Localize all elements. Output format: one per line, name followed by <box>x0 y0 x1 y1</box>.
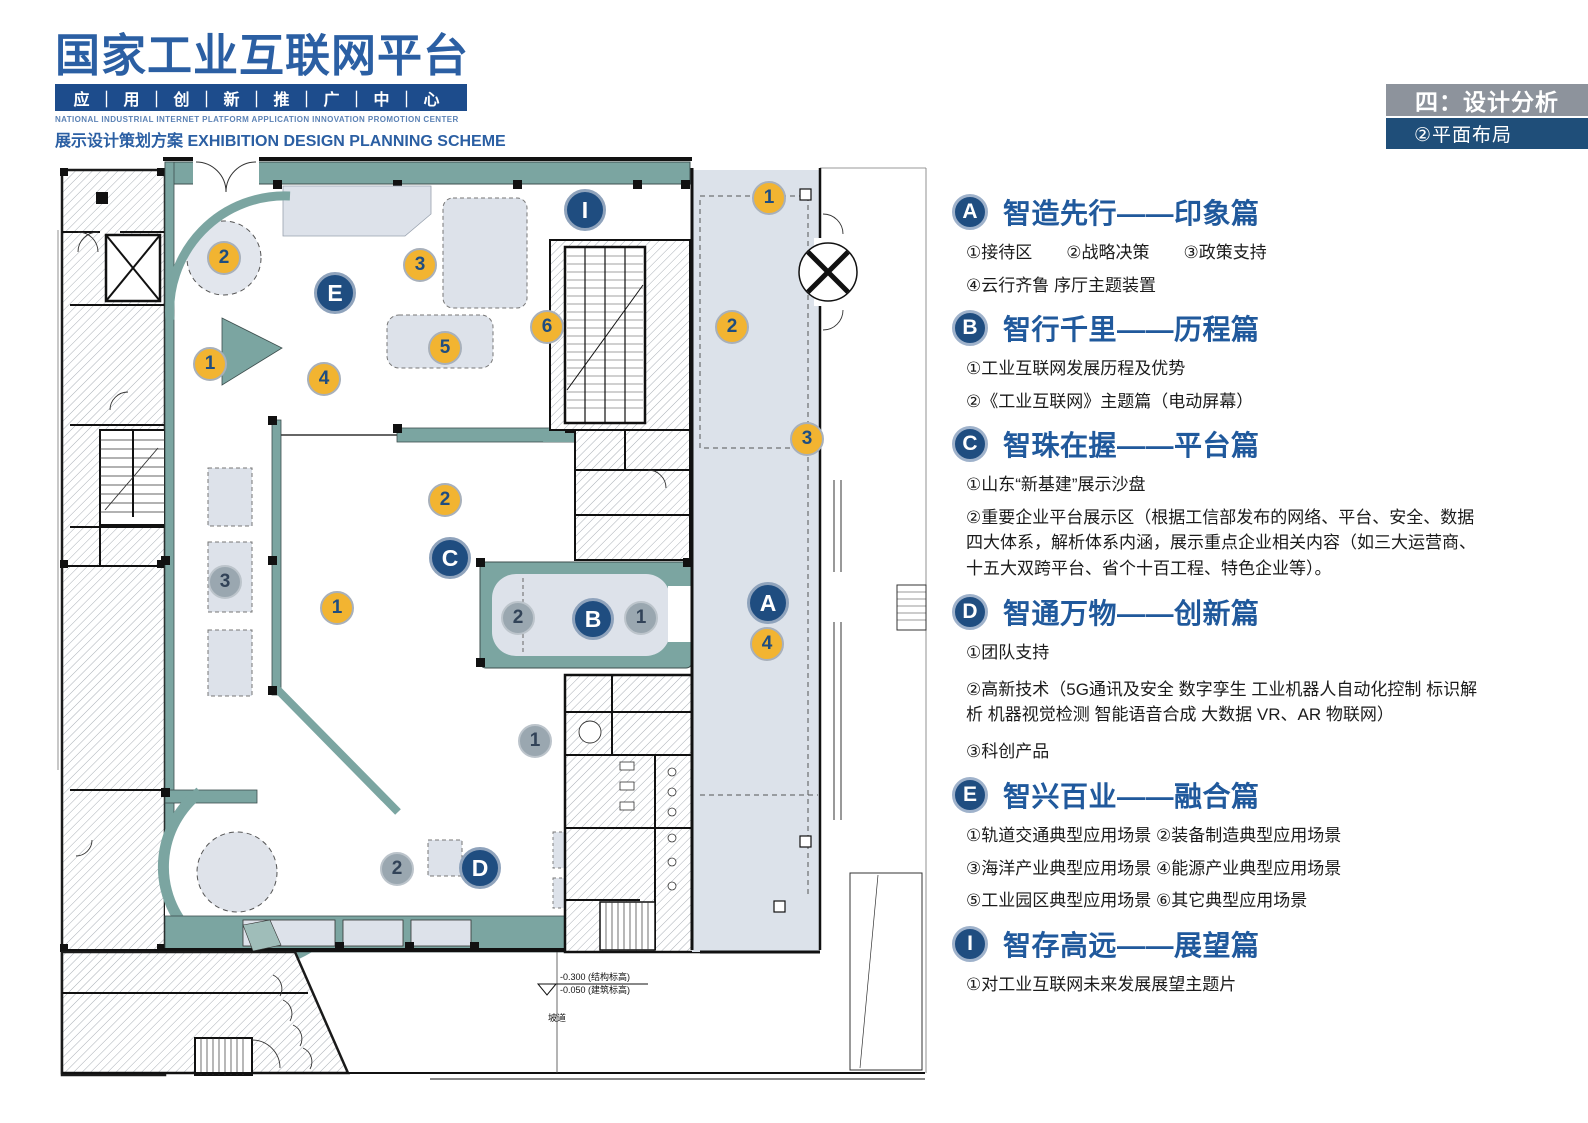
scheme-caption-cn: 展示设计策划方案 <box>55 133 183 150</box>
legend-title-a: 智造先行——印象篇 <box>1003 192 1260 232</box>
plan-marker-6: 6 <box>530 310 564 344</box>
plan-marker-B: B <box>572 598 614 640</box>
legend-section-c: C 智珠在握——平台篇 ①山东“新基建”展示沙盘②重要企业平台展示区（根据工信部… <box>952 424 1492 581</box>
plan-marker-2: 2 <box>715 310 749 344</box>
legend-lines-a: ①接待区 ②战略决策 ③政策支持④云行齐鲁 序厅主题装置 <box>966 240 1492 298</box>
legend-item-line: ②高新技术（5G通讯及安全 数字孪生 工业机器人自动化控制 标识解析 机器视觉检… <box>966 677 1488 728</box>
plan-marker-4: 4 <box>307 362 341 396</box>
legend-item-line: ③科创产品 <box>966 739 1488 765</box>
plan-marker-4: 4 <box>750 627 784 661</box>
plan-marker-A: A <box>747 582 789 624</box>
badge-a: A <box>952 194 988 230</box>
legend-section-c-head: C 智珠在握——平台篇 <box>952 424 1492 464</box>
plan-marker-layer: IECBAD23651412321432112 <box>0 0 950 1123</box>
legend-lines-c: ①山东“新基建”展示沙盘②重要企业平台展示区（根据工信部发布的网络、平台、安全、… <box>966 472 1492 581</box>
plan-marker-1: 1 <box>624 601 658 635</box>
legend-item-line: ①对工业互联网未来发展展望主题片 <box>966 972 1488 998</box>
legend-lines-e: ①轨道交通典型应用场景 ②装备制造典型应用场景③海洋产业典型应用场景 ④能源产业… <box>966 823 1492 914</box>
badge-c: C <box>952 426 988 462</box>
plan-marker-3: 3 <box>208 565 242 599</box>
legend-section-b-head: B 智行千里——历程篇 <box>952 308 1492 348</box>
logo-subtitle-bar: 应｜用｜创｜新｜推｜广｜中｜心 <box>55 84 467 111</box>
legend-lines-i: ①对工业互联网未来发展展望主题片 <box>966 972 1492 998</box>
legend-section-a: A 智造先行——印象篇 ①接待区 ②战略决策 ③政策支持④云行齐鲁 序厅主题装置 <box>952 192 1492 298</box>
legend-section-b: B 智行千里——历程篇 ①工业互联网发展历程及优势②《工业互联网》主题篇（电动屏… <box>952 308 1492 414</box>
legend-item-line: ⑤工业园区典型应用场景 ⑥其它典型应用场景 <box>966 888 1488 914</box>
scheme-caption-en: EXHIBITION DESIGN PLANNING SCHEME <box>187 133 505 150</box>
logo-block: 国家工业互联网平台 应｜用｜创｜新｜推｜广｜中｜心 NATIONAL INDUS… <box>55 32 467 151</box>
legend-item-line: ①团队支持 <box>966 640 1488 666</box>
plan-marker-2: 2 <box>380 852 414 886</box>
plan-marker-E: E <box>314 272 356 314</box>
plan-marker-1: 1 <box>320 591 354 625</box>
plan-marker-C: C <box>429 537 471 579</box>
plan-marker-5: 5 <box>428 331 462 365</box>
plan-marker-1: 1 <box>752 181 786 215</box>
legend-item-line: ②《工业互联网》主题篇（电动屏幕） <box>966 389 1488 415</box>
plan-marker-2: 2 <box>428 483 462 517</box>
badge-b: B <box>952 310 988 346</box>
badge-d: D <box>952 594 988 630</box>
legend-section-e-head: E 智兴百业——融合篇 <box>952 775 1492 815</box>
legend-lines-b: ①工业互联网发展历程及优势②《工业互联网》主题篇（电动屏幕） <box>966 356 1492 414</box>
logo-title: 国家工业互联网平台 <box>55 32 467 79</box>
legend-section-d-head: D 智通万物——创新篇 <box>952 592 1492 632</box>
legend-title-b: 智行千里——历程篇 <box>1003 308 1260 348</box>
legend-section-e: E 智兴百业——融合篇 ①轨道交通典型应用场景 ②装备制造典型应用场景③海洋产业… <box>952 775 1492 914</box>
legend-item-line: ①接待区 ②战略决策 ③政策支持 <box>966 240 1488 266</box>
plan-marker-2: 2 <box>501 601 535 635</box>
legend-item-line: ③海洋产业典型应用场景 ④能源产业典型应用场景 <box>966 856 1488 882</box>
tab-design-analysis: 四：设计分析 <box>1386 84 1588 116</box>
plan-marker-3: 3 <box>790 422 824 456</box>
badge-e: E <box>952 777 988 813</box>
legend-item-line: ④云行齐鲁 序厅主题装置 <box>966 273 1488 299</box>
tab-plane-layout: ②平面布局 <box>1386 118 1588 149</box>
legend-item-line: ①工业互联网发展历程及优势 <box>966 356 1488 382</box>
plan-marker-D: D <box>459 847 501 889</box>
legend-title-d: 智通万物——创新篇 <box>1003 592 1260 632</box>
legend-section-i-head: I 智存高远——展望篇 <box>952 924 1492 964</box>
legend-section-a-head: A 智造先行——印象篇 <box>952 192 1492 232</box>
plan-marker-1: 1 <box>518 724 552 758</box>
plan-marker-1: 1 <box>193 347 227 381</box>
plan-marker-I: I <box>564 189 606 231</box>
legend-item-line: ①山东“新基建”展示沙盘 <box>966 472 1488 498</box>
legend-item-line: ②重要企业平台展示区（根据工信部发布的网络、平台、安全、数据四大体系，解析体系内… <box>966 505 1488 582</box>
legend-title-c: 智珠在握——平台篇 <box>1003 424 1260 464</box>
legend-lines-d: ①团队支持②高新技术（5G通讯及安全 数字孪生 工业机器人自动化控制 标识解析 … <box>966 640 1492 764</box>
legend-section-i: I 智存高远——展望篇 ①对工业互联网未来发展展望主题片 <box>952 924 1492 998</box>
logo-english-caption: NATIONAL INDUSTRIAL INTERNET PLATFORM AP… <box>55 115 467 124</box>
plan-marker-2: 2 <box>207 241 241 275</box>
plan-marker-3: 3 <box>403 248 437 282</box>
legend-title-i: 智存高远——展望篇 <box>1003 924 1260 964</box>
legend-column: A 智造先行——印象篇 ①接待区 ②战略决策 ③政策支持④云行齐鲁 序厅主题装置… <box>952 192 1492 1007</box>
badge-i: I <box>952 926 988 962</box>
legend-section-d: D 智通万物——创新篇 ①团队支持②高新技术（5G通讯及安全 数字孪生 工业机器… <box>952 592 1492 764</box>
scheme-caption: 展示设计策划方案 EXHIBITION DESIGN PLANNING SCHE… <box>55 127 467 151</box>
legend-item-line: ①轨道交通典型应用场景 ②装备制造典型应用场景 <box>966 823 1488 849</box>
legend-title-e: 智兴百业——融合篇 <box>1003 775 1260 815</box>
